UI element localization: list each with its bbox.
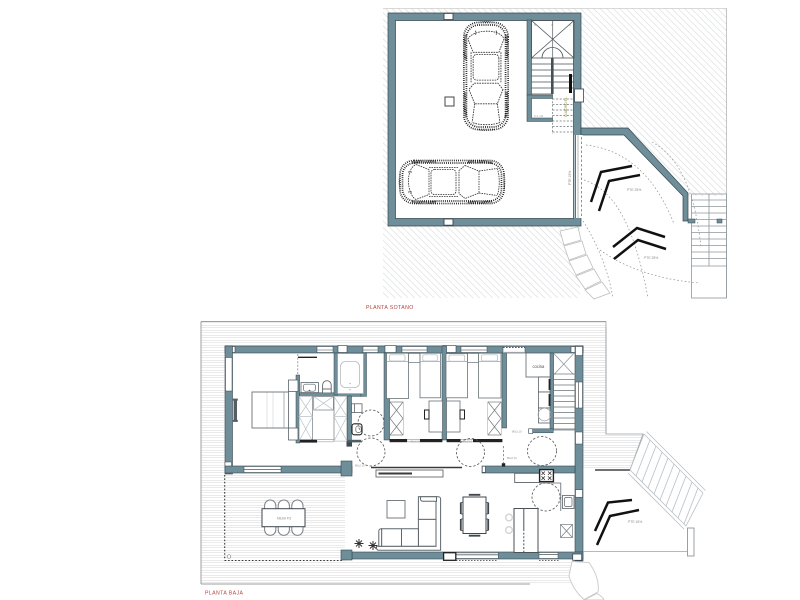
svg-text:PTE 25%: PTE 25%: [627, 188, 641, 192]
svg-text:PTE 15%: PTE 15%: [628, 520, 642, 524]
svg-text:80x2.10: 80x2.10: [512, 430, 522, 434]
svg-text:PTE 15%: PTE 15%: [568, 171, 572, 185]
svg-text:80x2.10: 80x2.10: [507, 456, 517, 460]
svg-text:PTE 25%: PTE 25%: [644, 256, 658, 260]
svg-text:PLANTA BAJA: PLANTA BAJA: [205, 591, 243, 597]
svg-text:MESA P.6: MESA P.6: [277, 516, 291, 520]
svg-text:CUADRO EL.: CUADRO EL.: [564, 96, 568, 117]
svg-text:2.1 m2: 2.1 m2: [534, 114, 544, 118]
svg-text:cocina: cocina: [533, 364, 546, 369]
svg-text:PLANTA SOTANO: PLANTA SOTANO: [366, 305, 414, 311]
svg-text:80x2.10: 80x2.10: [411, 439, 421, 443]
